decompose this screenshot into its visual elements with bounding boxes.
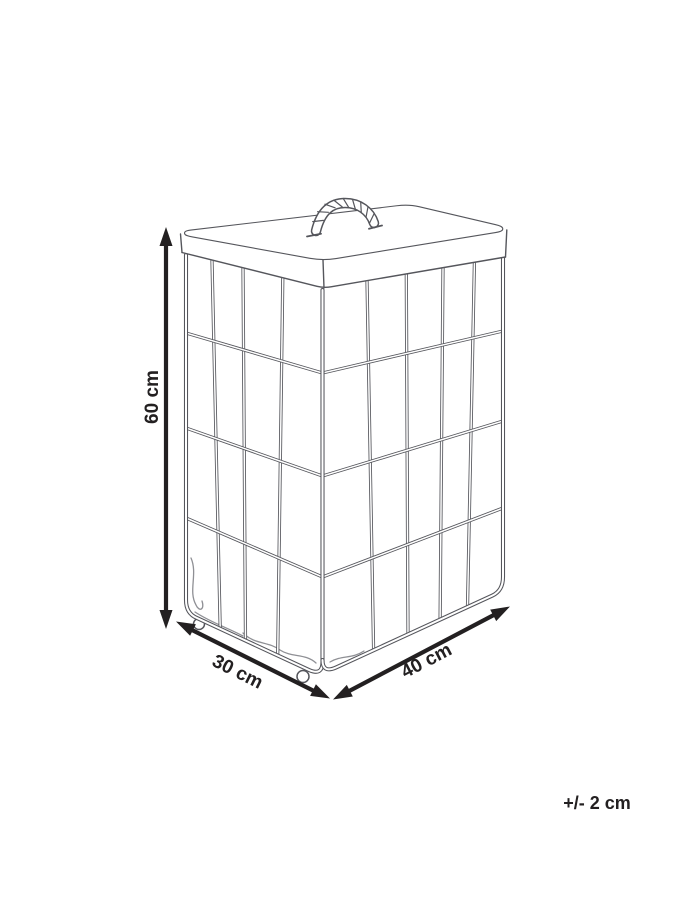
vertical-wires — [212, 261, 474, 655]
horizontal-rails — [186, 331, 503, 577]
tolerance-label: +/- 2 cm — [563, 793, 631, 813]
arrow-up-right-icon — [490, 607, 510, 622]
cage-frame — [186, 255, 503, 672]
arrow-down-icon — [160, 610, 173, 629]
depth-dimension: 30 cm — [176, 622, 330, 699]
caster-wheel-front — [297, 671, 309, 683]
width-dimension-label: 40 cm — [398, 639, 455, 683]
depth-dimension-label: 30 cm — [209, 651, 267, 694]
basket-illustration — [180, 198, 507, 682]
height-dimension: 60 cm — [142, 227, 173, 629]
height-dimension-label: 60 cm — [142, 370, 163, 424]
arrow-down-left-icon — [333, 685, 353, 700]
product-dimension-diagram: 60 cm 30 cm 40 cm +/- 2 cm — [0, 0, 690, 920]
arrow-down-right-icon — [310, 684, 330, 698]
arrow-up-icon — [160, 227, 173, 246]
basket-lid — [180, 207, 507, 288]
wire-cage — [186, 255, 503, 683]
diagram-svg: 60 cm 30 cm 40 cm +/- 2 cm — [0, 0, 690, 920]
